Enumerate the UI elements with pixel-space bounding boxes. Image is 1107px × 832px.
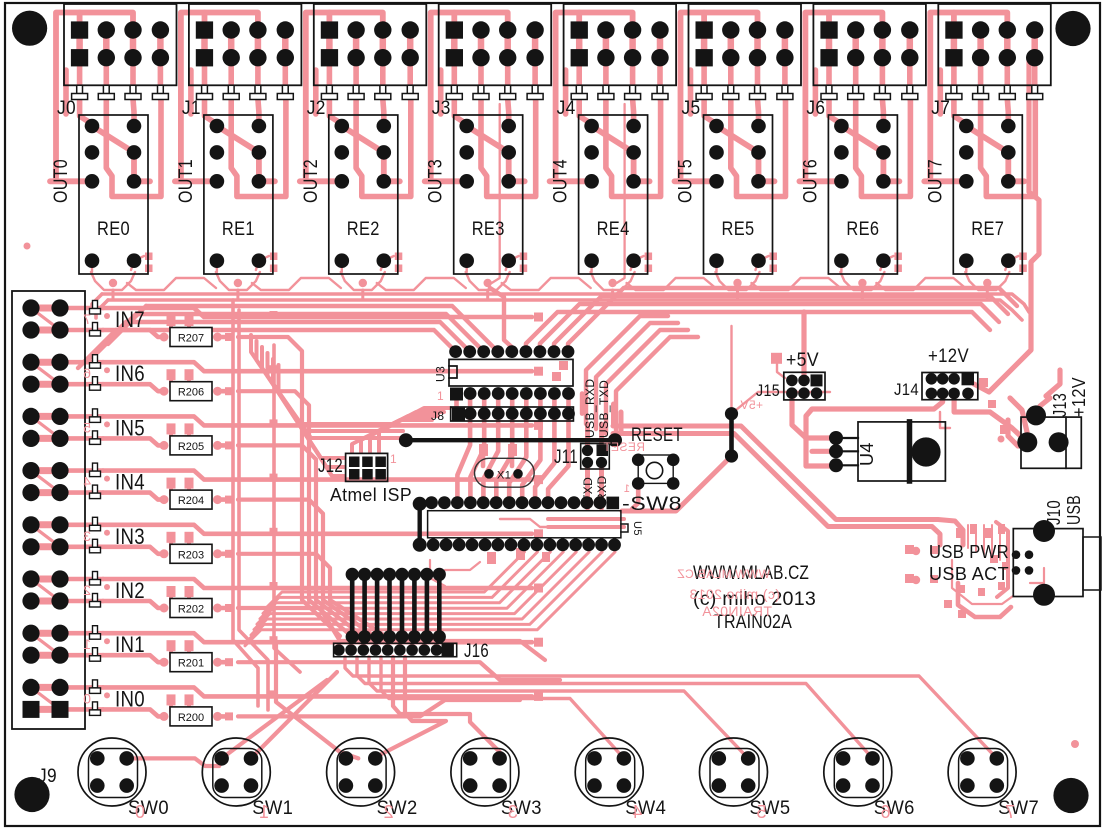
- svg-text:IN7: IN7: [115, 307, 145, 332]
- svg-text:0: 0: [135, 802, 145, 822]
- svg-text:RE6: RE6: [846, 219, 879, 240]
- svg-text:IN0: IN0: [115, 686, 145, 711]
- svg-text:+5V: +5V: [786, 350, 819, 371]
- svg-text:IN3: IN3: [115, 524, 145, 549]
- svg-text:+12V: +12V: [928, 346, 969, 367]
- svg-text:OUT6: OUT6: [800, 159, 821, 203]
- svg-text:J9: J9: [38, 766, 57, 787]
- svg-text:6: 6: [83, 365, 91, 381]
- svg-text:USB_TXD: USB_TXD: [597, 380, 611, 438]
- svg-text:RE5: RE5: [722, 219, 755, 240]
- svg-text:2: 2: [83, 582, 91, 598]
- svg-text:OUT0: OUT0: [51, 159, 72, 203]
- svg-text:USB: USB: [1064, 495, 1084, 525]
- svg-text:U4: U4: [857, 442, 877, 466]
- svg-text:RESET: RESET: [603, 440, 645, 454]
- svg-text:0: 0: [83, 690, 91, 706]
- svg-text:(c) miho 2013: (c) miho 2013: [689, 586, 780, 602]
- svg-text:R207: R207: [178, 333, 204, 345]
- svg-text:1: 1: [623, 483, 630, 495]
- svg-text:2: 2: [383, 802, 393, 822]
- svg-text:R203: R203: [178, 549, 204, 561]
- svg-text:1: 1: [390, 452, 397, 466]
- svg-text:RE1: RE1: [222, 219, 255, 240]
- svg-text:Atmel ISP: Atmel ISP: [330, 485, 412, 505]
- svg-text:5: 5: [83, 419, 91, 435]
- svg-text:X1: X1: [497, 470, 511, 482]
- svg-text:J12: J12: [318, 456, 343, 477]
- svg-text:IN6: IN6: [115, 361, 145, 386]
- svg-text:+12V: +12V: [1069, 377, 1089, 417]
- svg-text:RE4: RE4: [597, 219, 630, 240]
- svg-text:R206: R206: [178, 387, 204, 399]
- svg-text:USB PWR: USB PWR: [929, 542, 1009, 562]
- svg-text:J7: J7: [931, 98, 950, 119]
- svg-text:RE3: RE3: [472, 219, 505, 240]
- svg-text:OUT3: OUT3: [426, 159, 447, 203]
- svg-text:SW6: SW6: [874, 798, 915, 819]
- svg-text:RE7: RE7: [971, 219, 1004, 240]
- svg-text:RE0: RE0: [97, 219, 130, 240]
- svg-text:6: 6: [880, 802, 890, 822]
- svg-text:R201: R201: [178, 658, 204, 670]
- svg-text:OUT5: OUT5: [676, 159, 697, 203]
- svg-text:USB ACT: USB ACT: [929, 564, 1009, 584]
- svg-text:IN2: IN2: [115, 578, 145, 603]
- svg-text:J5: J5: [682, 98, 701, 119]
- svg-text:USB_RXD: USB_RXD: [583, 379, 597, 438]
- svg-text:SW0: SW0: [128, 798, 169, 819]
- svg-text:SW1: SW1: [252, 798, 293, 819]
- svg-text:U5: U5: [631, 521, 643, 536]
- svg-text:IN4: IN4: [115, 470, 145, 495]
- svg-text:3: 3: [83, 528, 91, 544]
- svg-text:5: 5: [756, 802, 766, 822]
- svg-text:J11: J11: [554, 447, 578, 468]
- svg-text:TRAIN02A: TRAIN02A: [702, 603, 772, 619]
- svg-text:J1: J1: [182, 98, 201, 119]
- svg-text:3: 3: [507, 802, 517, 822]
- svg-text:OUT7: OUT7: [925, 159, 946, 203]
- svg-text:7: 7: [1005, 802, 1015, 822]
- svg-text:J2: J2: [307, 98, 326, 119]
- svg-text:1: 1: [259, 802, 269, 822]
- svg-text:R200: R200: [178, 712, 204, 724]
- svg-text:IN5: IN5: [115, 415, 145, 440]
- svg-text:OUT4: OUT4: [551, 159, 572, 203]
- svg-text:J3: J3: [432, 98, 451, 119]
- svg-text:OUT1: OUT1: [176, 159, 197, 203]
- svg-text:R204: R204: [178, 495, 204, 507]
- svg-text:SW7: SW7: [998, 798, 1039, 819]
- svg-text:SW2: SW2: [377, 798, 418, 819]
- svg-text:4: 4: [632, 802, 642, 822]
- svg-text:J13: J13: [1050, 393, 1070, 417]
- svg-text:J4: J4: [557, 98, 576, 119]
- svg-text:SW5: SW5: [750, 798, 791, 819]
- svg-text:SW3: SW3: [501, 798, 542, 819]
- svg-text:J14: J14: [894, 380, 919, 399]
- svg-text:WWW.MLAB.CZ: WWW.MLAB.CZ: [677, 567, 770, 581]
- svg-text:1: 1: [437, 389, 444, 403]
- svg-text:RE2: RE2: [347, 219, 380, 240]
- svg-text:R202: R202: [178, 604, 204, 616]
- svg-text:-SW8: -SW8: [622, 494, 682, 515]
- svg-text:+5V: +5V: [740, 398, 763, 412]
- svg-text:U3: U3: [434, 366, 448, 382]
- svg-text:J6: J6: [806, 98, 825, 119]
- svg-text:J0: J0: [57, 98, 76, 119]
- svg-text:IN1: IN1: [115, 632, 145, 657]
- svg-text:J8: J8: [431, 409, 444, 423]
- svg-text:1: 1: [83, 636, 91, 652]
- svg-text:SW4: SW4: [625, 798, 666, 819]
- svg-text:J16: J16: [464, 641, 489, 662]
- svg-text:7: 7: [83, 311, 91, 327]
- svg-text:4: 4: [83, 474, 91, 490]
- svg-text:R205: R205: [178, 441, 204, 453]
- svg-text:OUT2: OUT2: [301, 159, 322, 203]
